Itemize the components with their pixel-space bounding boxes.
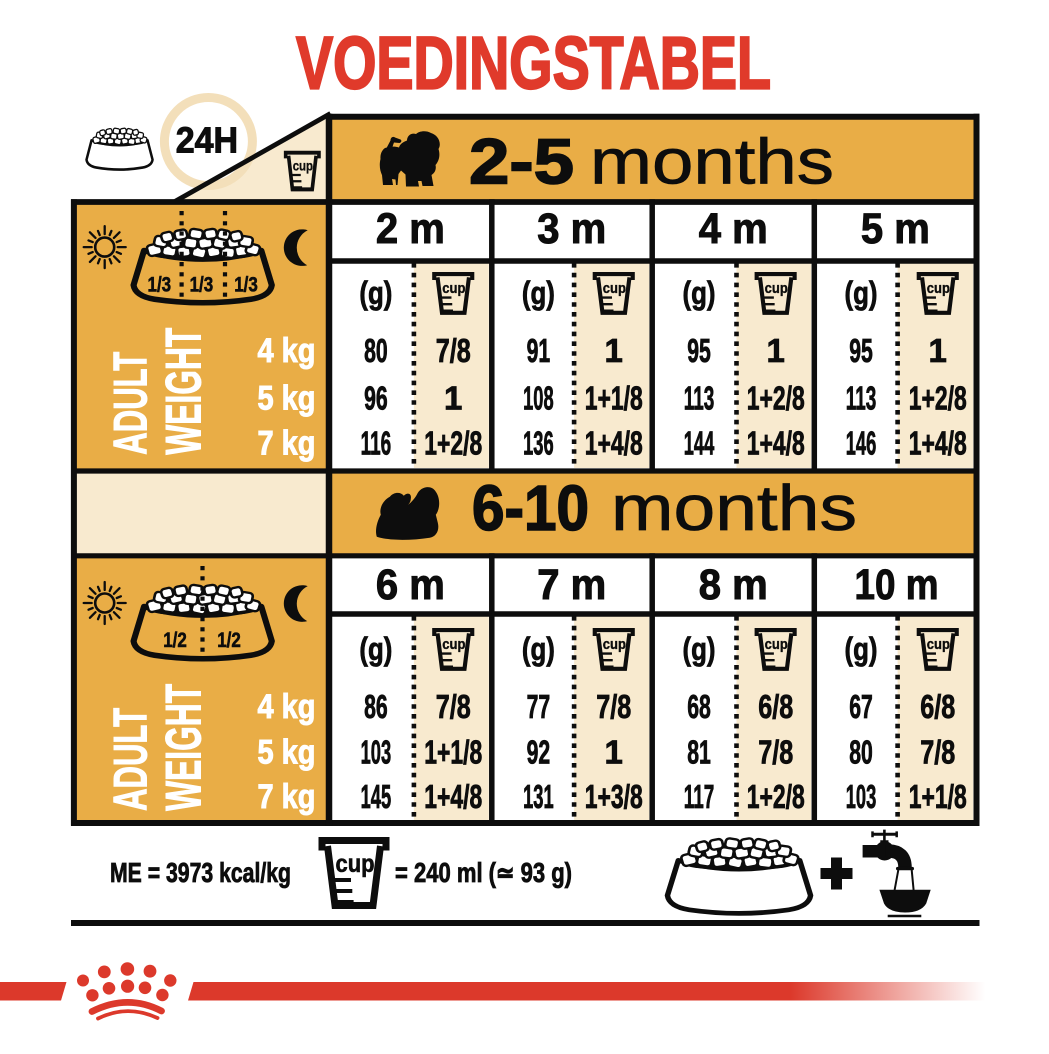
svg-text:(g): (g): [522, 631, 555, 667]
svg-text:103: 103: [846, 778, 877, 815]
svg-text:6 m: 6 m: [376, 561, 445, 609]
svg-text:5 kg: 5 kg: [258, 380, 316, 418]
svg-text:81: 81: [687, 734, 711, 771]
svg-text:1/3: 1/3: [148, 274, 172, 297]
svg-text:1+1/8: 1+1/8: [909, 778, 967, 815]
svg-text:1: 1: [605, 734, 623, 771]
svg-text:95: 95: [849, 332, 873, 369]
svg-text:1: 1: [767, 332, 785, 369]
svg-text:(g): (g): [522, 275, 555, 311]
svg-text:months: months: [590, 126, 834, 198]
svg-text:WEIGHT: WEIGHT: [155, 328, 211, 455]
svg-text:(g): (g): [683, 631, 716, 667]
svg-text:108: 108: [523, 380, 554, 417]
svg-text:7/8: 7/8: [596, 688, 631, 725]
svg-text:1: 1: [605, 332, 623, 369]
svg-text:5 m: 5 m: [861, 205, 930, 253]
svg-text:96: 96: [364, 380, 388, 417]
svg-text:6/8: 6/8: [920, 688, 955, 725]
svg-text:113: 113: [846, 380, 877, 417]
svg-text:67: 67: [849, 688, 873, 725]
svg-text:7 kg: 7 kg: [258, 778, 316, 816]
svg-text:86: 86: [364, 688, 388, 725]
svg-text:4 m: 4 m: [699, 205, 768, 253]
svg-text:1+4/8: 1+4/8: [585, 425, 643, 462]
svg-text:(g): (g): [683, 275, 716, 311]
svg-text:3 m: 3 m: [537, 205, 606, 253]
svg-text:146: 146: [846, 425, 877, 462]
svg-text:6/8: 6/8: [758, 688, 793, 725]
svg-text:7/8: 7/8: [920, 734, 955, 771]
svg-text:145: 145: [361, 778, 392, 815]
svg-text:7 m: 7 m: [537, 561, 606, 609]
svg-text:7/8: 7/8: [758, 734, 793, 771]
svg-text:(g): (g): [359, 275, 392, 311]
svg-text:1+2/8: 1+2/8: [909, 380, 967, 417]
svg-text:1+4/8: 1+4/8: [424, 778, 482, 815]
svg-text:77: 77: [527, 688, 551, 725]
svg-text:(g): (g): [359, 631, 392, 667]
svg-text:= 240 ml (≃ 93 g): = 240 ml (≃ 93 g): [395, 857, 572, 888]
svg-text:136: 136: [523, 425, 554, 462]
svg-text:1+2/8: 1+2/8: [424, 425, 482, 462]
svg-text:68: 68: [687, 688, 711, 725]
svg-text:ME = 3973 kcal/kg: ME = 3973 kcal/kg: [110, 857, 291, 888]
svg-text:1: 1: [444, 380, 462, 417]
svg-text:1+1/8: 1+1/8: [424, 734, 482, 771]
svg-text:2 m: 2 m: [376, 205, 445, 253]
svg-text:95: 95: [687, 332, 711, 369]
svg-text:5 kg: 5 kg: [258, 734, 316, 772]
svg-text:7 kg: 7 kg: [258, 425, 316, 463]
svg-text:(g): (g): [845, 631, 878, 667]
svg-text:80: 80: [364, 332, 388, 369]
svg-text:6-10: 6-10: [472, 472, 589, 544]
svg-text:1/3: 1/3: [234, 274, 258, 297]
svg-text:7/8: 7/8: [436, 332, 471, 369]
svg-text:4 kg: 4 kg: [258, 332, 316, 370]
svg-text:4 kg: 4 kg: [258, 688, 316, 726]
svg-text:113: 113: [684, 380, 715, 417]
svg-text:1+3/8: 1+3/8: [585, 778, 643, 815]
svg-text:1+2/8: 1+2/8: [747, 778, 805, 815]
svg-text:92: 92: [527, 734, 551, 771]
svg-text:1/2: 1/2: [217, 629, 241, 652]
svg-text:VOEDINGSTABEL: VOEDINGSTABEL: [296, 22, 771, 105]
svg-text:144: 144: [684, 425, 715, 462]
svg-text:1: 1: [929, 332, 947, 369]
svg-text:7/8: 7/8: [436, 688, 471, 725]
svg-text:1+4/8: 1+4/8: [909, 425, 967, 462]
svg-text:ADULT: ADULT: [103, 708, 156, 811]
svg-text:(g): (g): [845, 275, 878, 311]
svg-text:10 m: 10 m: [855, 561, 939, 609]
svg-text:91: 91: [527, 332, 551, 369]
svg-text:1+1/8: 1+1/8: [585, 380, 643, 417]
svg-text:WEIGHT: WEIGHT: [155, 684, 211, 811]
svg-text:months: months: [611, 472, 857, 544]
svg-text:24H: 24H: [176, 119, 238, 160]
svg-text:2-5: 2-5: [469, 126, 574, 198]
svg-text:1+4/8: 1+4/8: [747, 425, 805, 462]
svg-text:117: 117: [684, 778, 715, 815]
svg-text:1+2/8: 1+2/8: [747, 380, 805, 417]
svg-text:1/3: 1/3: [190, 274, 214, 297]
svg-text:1/2: 1/2: [163, 629, 187, 652]
svg-text:116: 116: [361, 425, 392, 462]
svg-text:131: 131: [523, 778, 554, 815]
svg-text:80: 80: [849, 734, 873, 771]
svg-text:103: 103: [361, 734, 392, 771]
svg-text:ADULT: ADULT: [103, 352, 156, 455]
svg-text:8 m: 8 m: [699, 561, 768, 609]
